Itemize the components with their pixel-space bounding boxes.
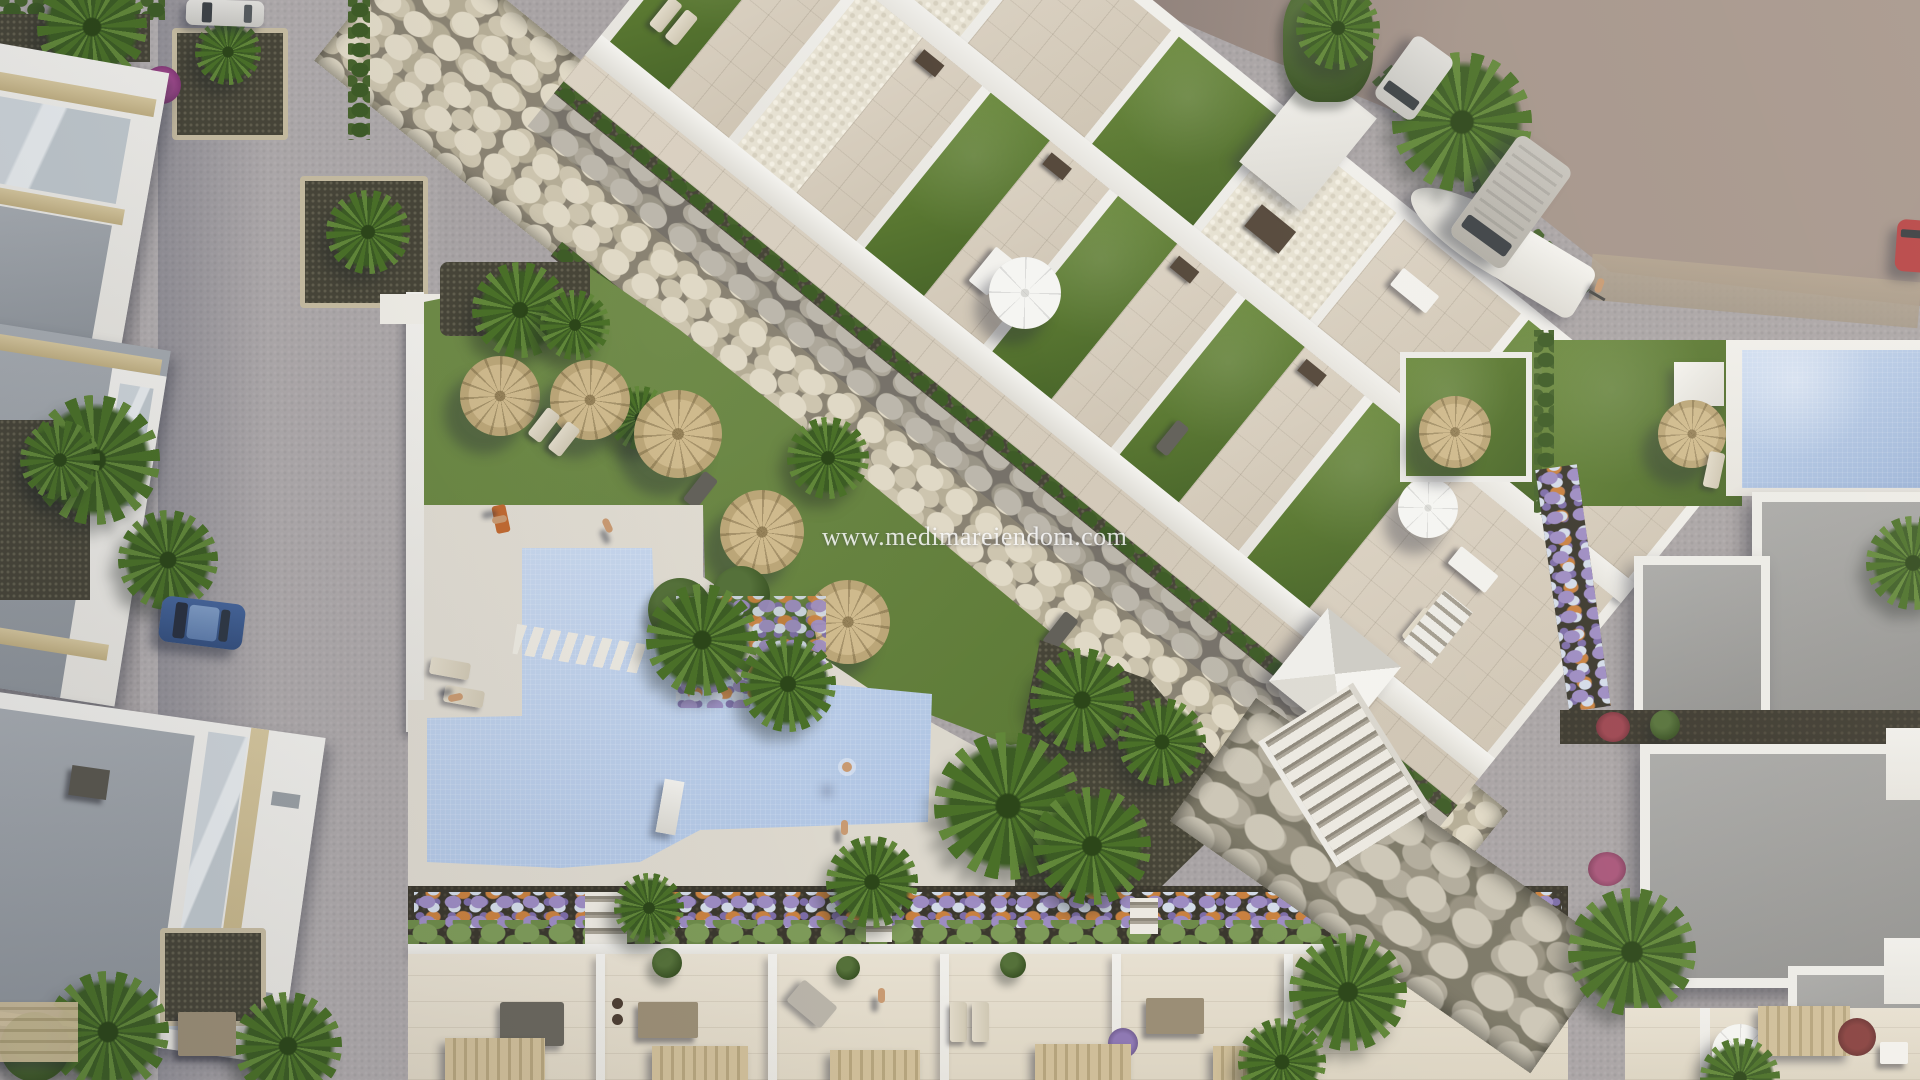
aerial-render-scene: www.medimareiendom.com bbox=[0, 0, 1920, 1080]
car-windshield bbox=[1901, 229, 1920, 239]
plant-pot bbox=[612, 1014, 623, 1025]
pergola-roof bbox=[0, 1002, 78, 1062]
rooftop-volume bbox=[1884, 938, 1920, 1004]
outdoor-dining-table bbox=[638, 1002, 698, 1038]
patio-table bbox=[1880, 1042, 1908, 1064]
magenta-plant bbox=[1588, 852, 1626, 886]
red-plant bbox=[1596, 712, 1630, 742]
terrace-divider bbox=[768, 954, 777, 1080]
palm-tree bbox=[1118, 698, 1206, 786]
car-rear-window bbox=[218, 609, 231, 642]
palm-tree bbox=[118, 510, 218, 610]
garden-steps bbox=[1130, 898, 1158, 934]
red-car bbox=[1894, 219, 1920, 273]
white-parasol bbox=[989, 257, 1061, 329]
patio-table-set bbox=[178, 1012, 236, 1056]
sun-lounger bbox=[972, 1002, 989, 1042]
chimney bbox=[68, 765, 110, 800]
watermark-text: www.medimareiendom.com bbox=[822, 522, 1127, 552]
palm-tree bbox=[20, 420, 100, 500]
straw-parasol bbox=[634, 390, 722, 478]
palm-tree bbox=[195, 19, 261, 85]
straw-parasol bbox=[460, 356, 540, 436]
pergola-roof bbox=[1758, 1006, 1850, 1056]
terrace-plant bbox=[1000, 952, 1026, 978]
palm-tree bbox=[1568, 888, 1696, 1016]
pergola-roof bbox=[1035, 1044, 1131, 1080]
car-windshield bbox=[202, 2, 213, 22]
palm-tree bbox=[1033, 787, 1151, 905]
dark-red-plant bbox=[1838, 1018, 1876, 1056]
white-car bbox=[186, 0, 265, 27]
hedge-row bbox=[348, 0, 370, 140]
palm-tree bbox=[787, 417, 869, 499]
boundary-wall bbox=[406, 292, 424, 732]
person-on-terrace bbox=[878, 988, 885, 1003]
palm-tree bbox=[614, 873, 684, 943]
outdoor-dining-table bbox=[1146, 998, 1204, 1034]
straw-parasol bbox=[1419, 396, 1491, 468]
straw-parasol bbox=[720, 490, 804, 574]
van-windshield bbox=[1383, 80, 1420, 111]
white-parasol bbox=[1398, 478, 1458, 538]
person-at-pool-edge bbox=[841, 820, 848, 835]
terrace-divider bbox=[596, 954, 605, 1080]
plant-pot bbox=[612, 998, 623, 1009]
palm-tree bbox=[826, 836, 918, 928]
car-rear-window bbox=[244, 5, 253, 23]
terrace-plant bbox=[652, 948, 682, 978]
pergola-roof bbox=[652, 1046, 748, 1080]
palm-tree bbox=[326, 190, 410, 274]
neighbor-pool bbox=[1742, 350, 1920, 488]
person-swimming bbox=[842, 762, 852, 772]
palm-tree bbox=[740, 636, 836, 732]
pergola-roof bbox=[445, 1038, 545, 1080]
palm-tree bbox=[540, 290, 610, 360]
rooftop-volume bbox=[1886, 728, 1920, 800]
shrub bbox=[1650, 710, 1680, 740]
pergola-roof bbox=[830, 1050, 920, 1080]
sun-lounger bbox=[950, 1002, 967, 1042]
white-pavilion bbox=[1674, 362, 1724, 406]
car-roof bbox=[186, 604, 220, 641]
terrace-divider bbox=[940, 954, 949, 1080]
terrace-plant bbox=[836, 956, 860, 980]
